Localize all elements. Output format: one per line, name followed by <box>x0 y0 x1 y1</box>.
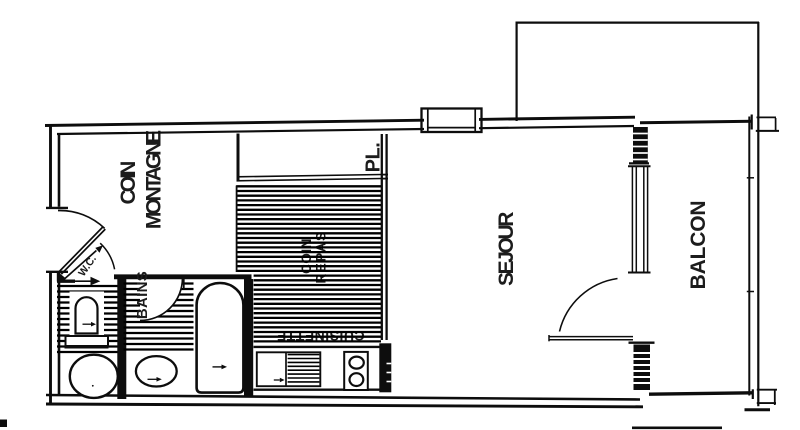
svg-text:BAINS: BAINS <box>134 271 151 319</box>
svg-text:MONTAGNE: MONTAGNE <box>143 130 166 229</box>
svg-text:COIN: COIN <box>117 162 140 205</box>
svg-text:SEJOUR: SEJOUR <box>495 212 518 286</box>
svg-text:BALCON: BALCON <box>687 201 710 290</box>
